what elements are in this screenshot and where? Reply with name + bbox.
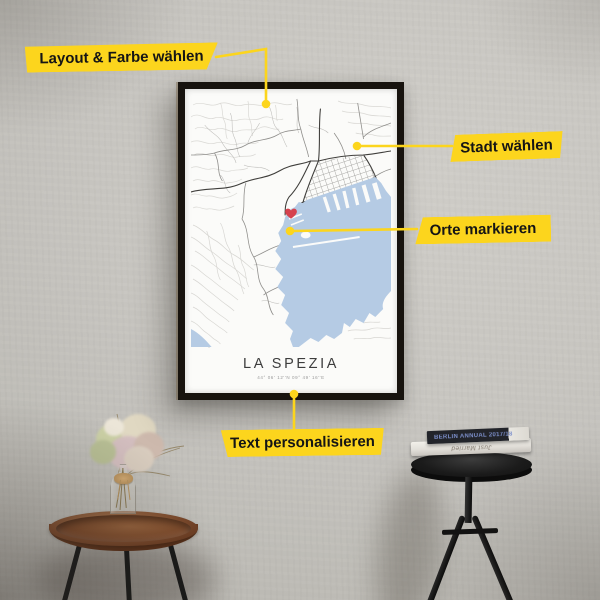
flower-blob bbox=[90, 440, 116, 464]
map-graphic bbox=[191, 95, 391, 348]
book-spine-text: Just Married bbox=[451, 443, 492, 451]
book-spine-text: BERLIN ANNUAL 2017/18 bbox=[427, 431, 513, 441]
callout-choose-city: Stadt wählen bbox=[450, 131, 564, 162]
map-island bbox=[301, 232, 311, 239]
callout-mark-places: Orte markieren bbox=[415, 215, 552, 245]
table-tray-interior bbox=[56, 515, 191, 542]
scene: Just Married BERLIN ANNUAL 2017/18 bbox=[0, 0, 600, 600]
map-water bbox=[275, 177, 391, 347]
poster-title: LA SPEZIA bbox=[185, 356, 397, 372]
callout-city-label: Stadt wählen bbox=[460, 136, 553, 156]
callout-layout-label: Layout & Farbe wählen bbox=[39, 48, 203, 68]
twine-bow bbox=[114, 473, 133, 484]
poster-frame: LA SPEZIA 44° 06' 12''N 09° 49' 16''E bbox=[178, 82, 404, 400]
callout-personalize-label: Text personalisieren bbox=[230, 433, 375, 452]
flower-blob bbox=[124, 446, 154, 472]
table-leg bbox=[124, 548, 132, 600]
map-water-southwest bbox=[191, 329, 212, 347]
table-leg bbox=[168, 544, 189, 600]
table-leg bbox=[61, 544, 82, 600]
callout-places-label: Orte markieren bbox=[429, 220, 536, 239]
map-poster: LA SPEZIA 44° 06' 12''N 09° 49' 16''E bbox=[185, 89, 397, 393]
stool-seat bbox=[411, 452, 532, 477]
la-spezia-map bbox=[191, 95, 391, 348]
stool-crossbar bbox=[442, 528, 498, 535]
stool-leg bbox=[423, 515, 466, 600]
glass-bottle-vase bbox=[110, 464, 136, 514]
poster-coordinates: 44° 06' 12''N 09° 49' 16''E bbox=[185, 375, 397, 380]
flower-blob bbox=[104, 418, 124, 436]
callout-layout-color: Layout & Farbe wählen bbox=[25, 42, 218, 72]
callout-personalize-text: Text personalisieren bbox=[221, 428, 384, 457]
stool-post bbox=[465, 473, 473, 523]
